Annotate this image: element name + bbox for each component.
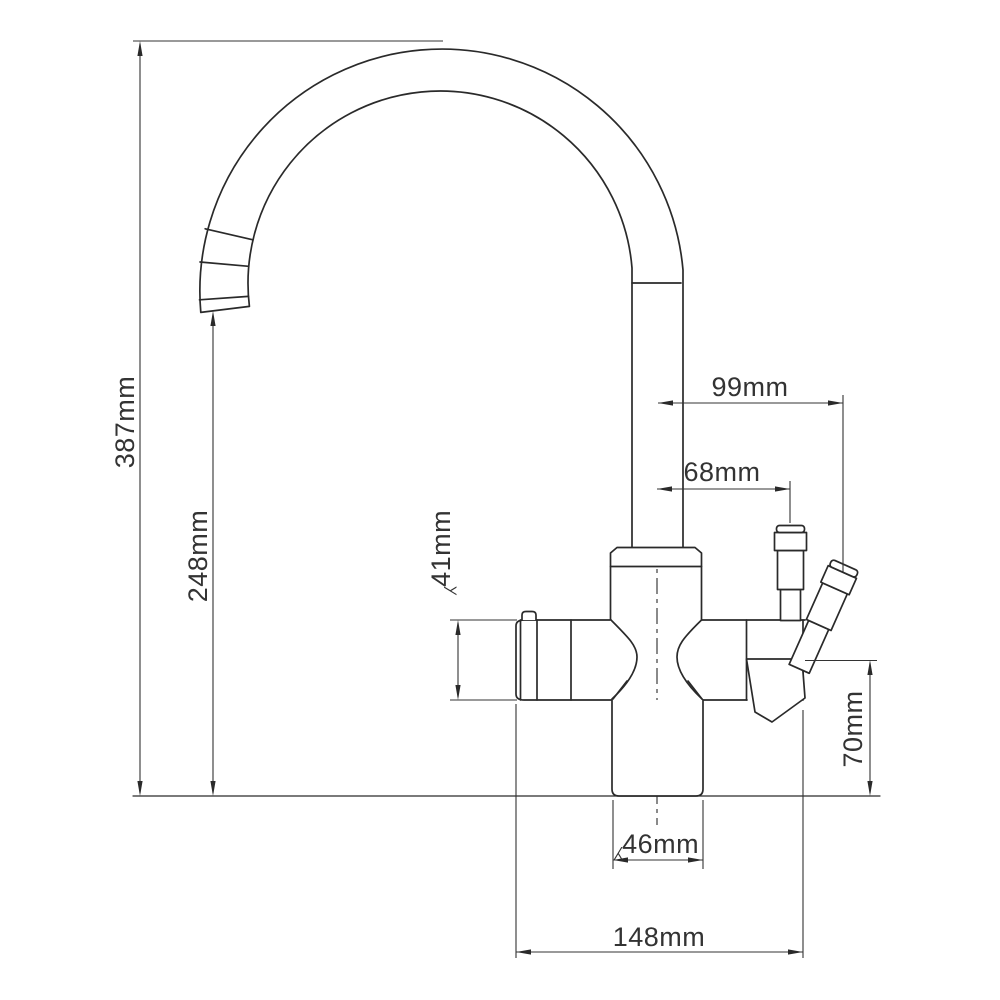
- dimension-lever-height: 70mm: [805, 660, 877, 796]
- arrow-up-icon: [210, 311, 215, 326]
- arrow-down-icon: [210, 781, 215, 796]
- valve-cone: [747, 659, 806, 722]
- arrow-right-icon: [828, 400, 843, 405]
- base-taper-right: [688, 681, 702, 699]
- dim-label-handle-offset: 68mm: [683, 457, 760, 487]
- dim-label-overall-height: 387mm: [110, 376, 140, 469]
- dim-label-handle-diameter: ⁁41mm: [426, 510, 456, 596]
- dimension-spout-outlet-height: 248mm: [183, 311, 215, 796]
- technical-drawing-canvas: 387mm 248mm 99mm 68mm ⁁41mm 70: [0, 0, 1000, 1000]
- body-column: [611, 567, 702, 621]
- arrow-down-icon: [867, 781, 872, 796]
- dimension-handle-diameter: ⁁41mm: [426, 510, 517, 700]
- arrow-down-icon: [137, 781, 142, 796]
- faucet-technical-drawing: 387mm 248mm 99mm 68mm ⁁41mm 70: [0, 0, 1000, 1000]
- arrow-down-icon: [455, 685, 460, 700]
- dim-label-overall-depth: 148mm: [613, 922, 706, 952]
- arrow-up-icon: [137, 41, 142, 56]
- dim-label-base-diameter: ⁁46mm: [613, 829, 699, 859]
- left-handle-knob: [522, 612, 536, 621]
- dim-label-lever-height: 70mm: [838, 690, 868, 767]
- arrow-right-icon: [788, 949, 803, 954]
- base-taper-left: [613, 681, 627, 699]
- arrow-right-icon: [775, 486, 790, 491]
- body-collar: [611, 548, 702, 567]
- dim-label-spout-offset: 99mm: [711, 372, 788, 402]
- hot-handle: [775, 526, 807, 621]
- arrow-left-icon: [516, 949, 531, 954]
- arrow-up-icon: [867, 660, 872, 675]
- dimension-base-diameter: ⁁46mm: [613, 800, 703, 869]
- spout-arc: [200, 49, 683, 548]
- dim-label-spout-outlet-height: 248mm: [183, 510, 213, 603]
- left-handle: [516, 612, 611, 701]
- arrow-up-icon: [455, 620, 460, 635]
